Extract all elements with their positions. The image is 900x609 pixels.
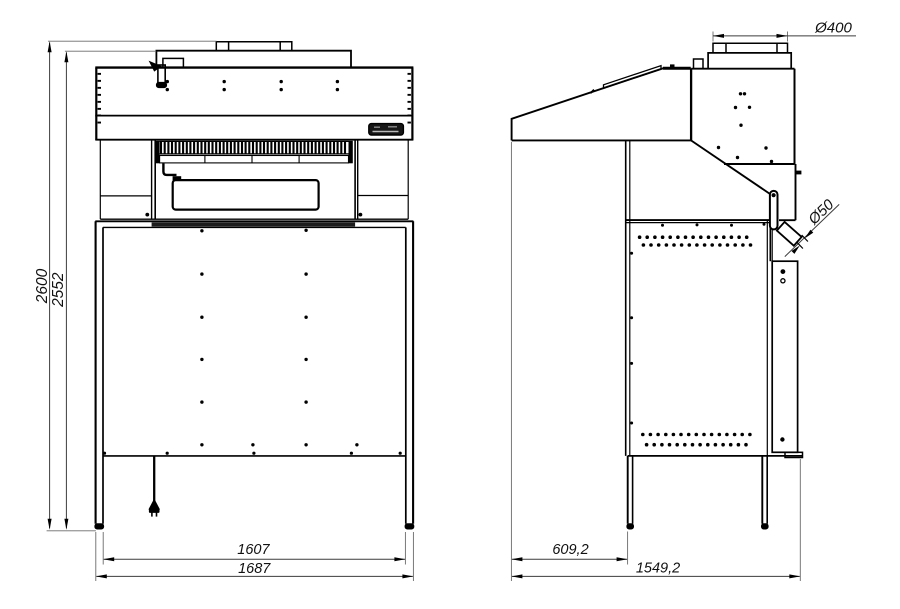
svg-text:1607: 1607 xyxy=(237,542,270,558)
svg-text:Ø50: Ø50 xyxy=(804,196,837,229)
svg-text:2552: 2552 xyxy=(50,272,67,308)
svg-text:609,2: 609,2 xyxy=(552,542,588,558)
svg-text:Ø400: Ø400 xyxy=(814,20,852,37)
svg-text:1687: 1687 xyxy=(238,561,271,577)
svg-text:1549,2: 1549,2 xyxy=(636,561,680,577)
svg-text:2600: 2600 xyxy=(34,268,51,304)
